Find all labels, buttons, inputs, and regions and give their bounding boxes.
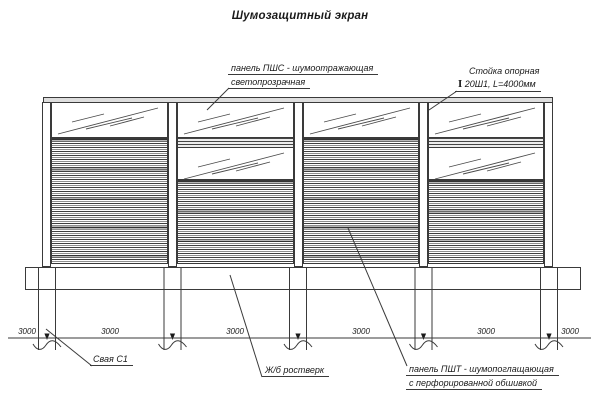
glass-panel <box>428 147 544 180</box>
callout-post-line2: I 20Ш1, L=4000мм <box>455 79 541 92</box>
callout-pshs-line2: светопрозрачная <box>228 77 310 89</box>
callout-psht-panel: панель ПШТ - шумопоглащающая с перфориро… <box>406 364 559 392</box>
louver-panel <box>303 138 419 264</box>
callout-grillage: Ж/б ростверк <box>262 365 329 379</box>
i-beam-icon: I <box>458 80 462 90</box>
support-post-2 <box>168 102 177 267</box>
glass-panel <box>51 102 168 138</box>
dimension-label: 3000 <box>218 327 252 336</box>
callout-grillage-label: Ж/б ростверк <box>262 365 329 377</box>
glass-panel <box>177 102 294 138</box>
callout-post-line1: Стойка опорная <box>467 66 541 77</box>
bay-3 <box>303 102 419 264</box>
callout-pile-label: Свая С1 <box>90 354 133 366</box>
callout-psht-line1: панель ПШТ - шумопоглащающая <box>406 364 559 376</box>
grillage-beam <box>25 267 581 290</box>
bay-2 <box>177 102 294 264</box>
noise-barrier-drawing: Шумозащитный экран <box>0 0 600 401</box>
leader-grillage <box>230 275 262 377</box>
glass-panel <box>303 102 419 138</box>
support-post-1 <box>42 102 51 267</box>
callout-psht-line2: с перфорированной обшивкой <box>406 378 542 390</box>
dimension-label: 3000 <box>10 327 44 336</box>
dimension-label: 3000 <box>93 327 127 336</box>
louver-rail <box>428 138 544 147</box>
glass-panel <box>177 147 294 180</box>
support-post-4 <box>419 102 428 267</box>
glass-panel <box>428 102 544 138</box>
louver-panel <box>428 180 544 264</box>
bay-1 <box>51 102 168 264</box>
callout-support-post: Стойка опорная I 20Ш1, L=4000мм <box>455 66 541 94</box>
support-post-5 <box>544 102 553 267</box>
dimension-label: 3000 <box>553 327 587 336</box>
louver-panel <box>177 180 294 264</box>
callout-pshs-line1: панель ПШС - шумоотражающая <box>228 63 378 75</box>
louver-rail <box>177 138 294 147</box>
leader-pile <box>46 329 92 366</box>
dimension-label: 3000 <box>344 327 378 336</box>
callout-pile: Свая С1 <box>90 354 133 368</box>
callout-pshs-panel: панель ПШС - шумоотражающая светопрозрач… <box>228 63 378 91</box>
drawing-title: Шумозащитный экран <box>0 10 600 22</box>
louver-panel <box>51 138 168 264</box>
dimension-label: 3000 <box>469 327 503 336</box>
bay-4 <box>428 102 544 264</box>
support-post-3 <box>294 102 303 267</box>
callout-post-spec: 20Ш1, L=4000мм <box>465 79 536 89</box>
